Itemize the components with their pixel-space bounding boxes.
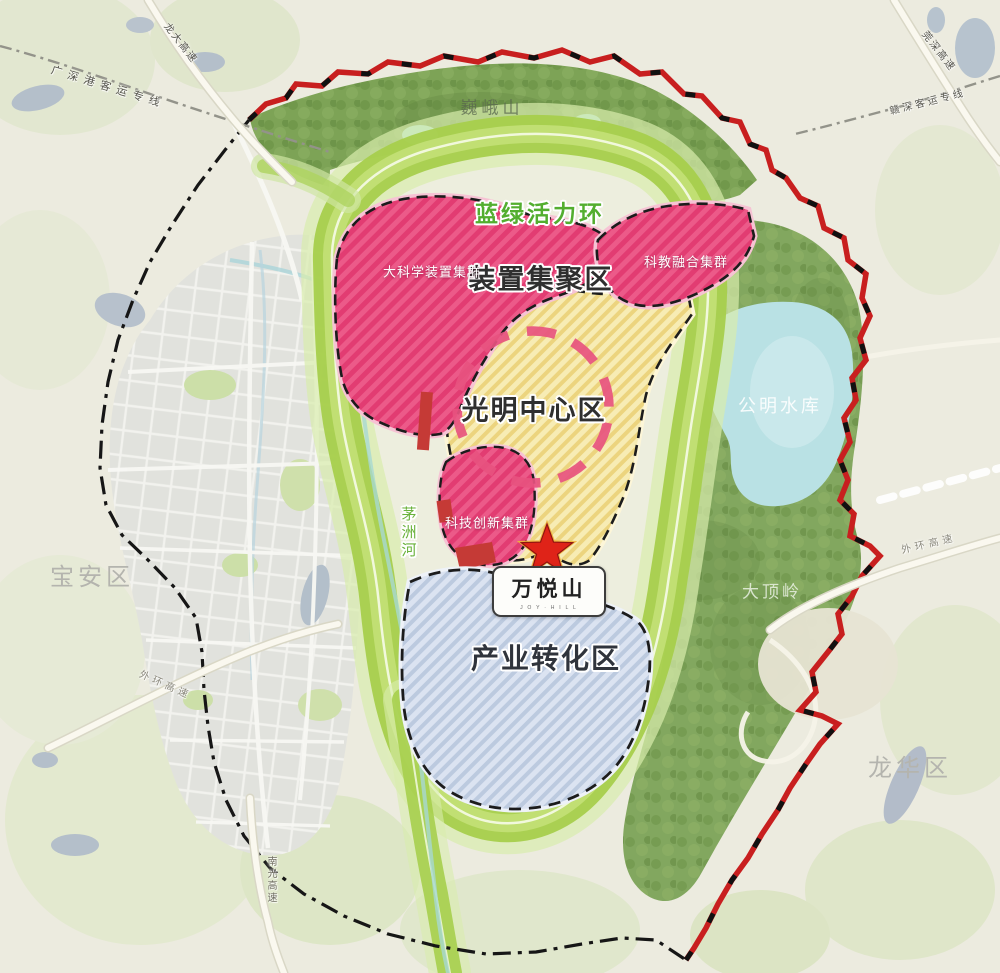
label-sci-edu-cluster: 科教融合集群 — [644, 256, 728, 269]
wanyue-hill-title: 万悦山 — [512, 573, 587, 603]
wanyue-hill-subtitle: J O Y · H I L L — [520, 605, 577, 610]
label-industry-zone: 产业转化区 — [471, 645, 621, 673]
label-reservoir: 公明水库 — [738, 397, 822, 415]
wanyue-hill-badge: 万悦山 J O Y · H I L L — [492, 566, 606, 617]
planning-map: 蓝绿活力环 装置集聚区 大科学装置集群 科教融合集群 光明中心区 科技创新集群 … — [0, 0, 1000, 973]
label-longhua-district: 龙华区 — [868, 757, 952, 781]
label-device-zone: 装置集聚区 — [469, 267, 614, 294]
label-center-zone: 光明中心区 — [462, 398, 607, 425]
label-maozhou-river: 茅洲河 — [401, 506, 416, 560]
label-baoan-district: 宝安区 — [50, 566, 134, 590]
label-weie-mountain: 巍峨山 — [461, 100, 524, 117]
label-dading-ridge: 大顶岭 — [742, 584, 802, 601]
label-blue-green-ring: 蓝绿活力环 — [475, 203, 605, 226]
label-tech-cluster: 科技创新集群 — [445, 517, 529, 530]
label-nanguang-expressway: 南光高速 — [265, 856, 275, 904]
basemap-artwork — [0, 0, 1000, 973]
label-big-science-cluster: 大科学装置集群 — [383, 266, 481, 279]
